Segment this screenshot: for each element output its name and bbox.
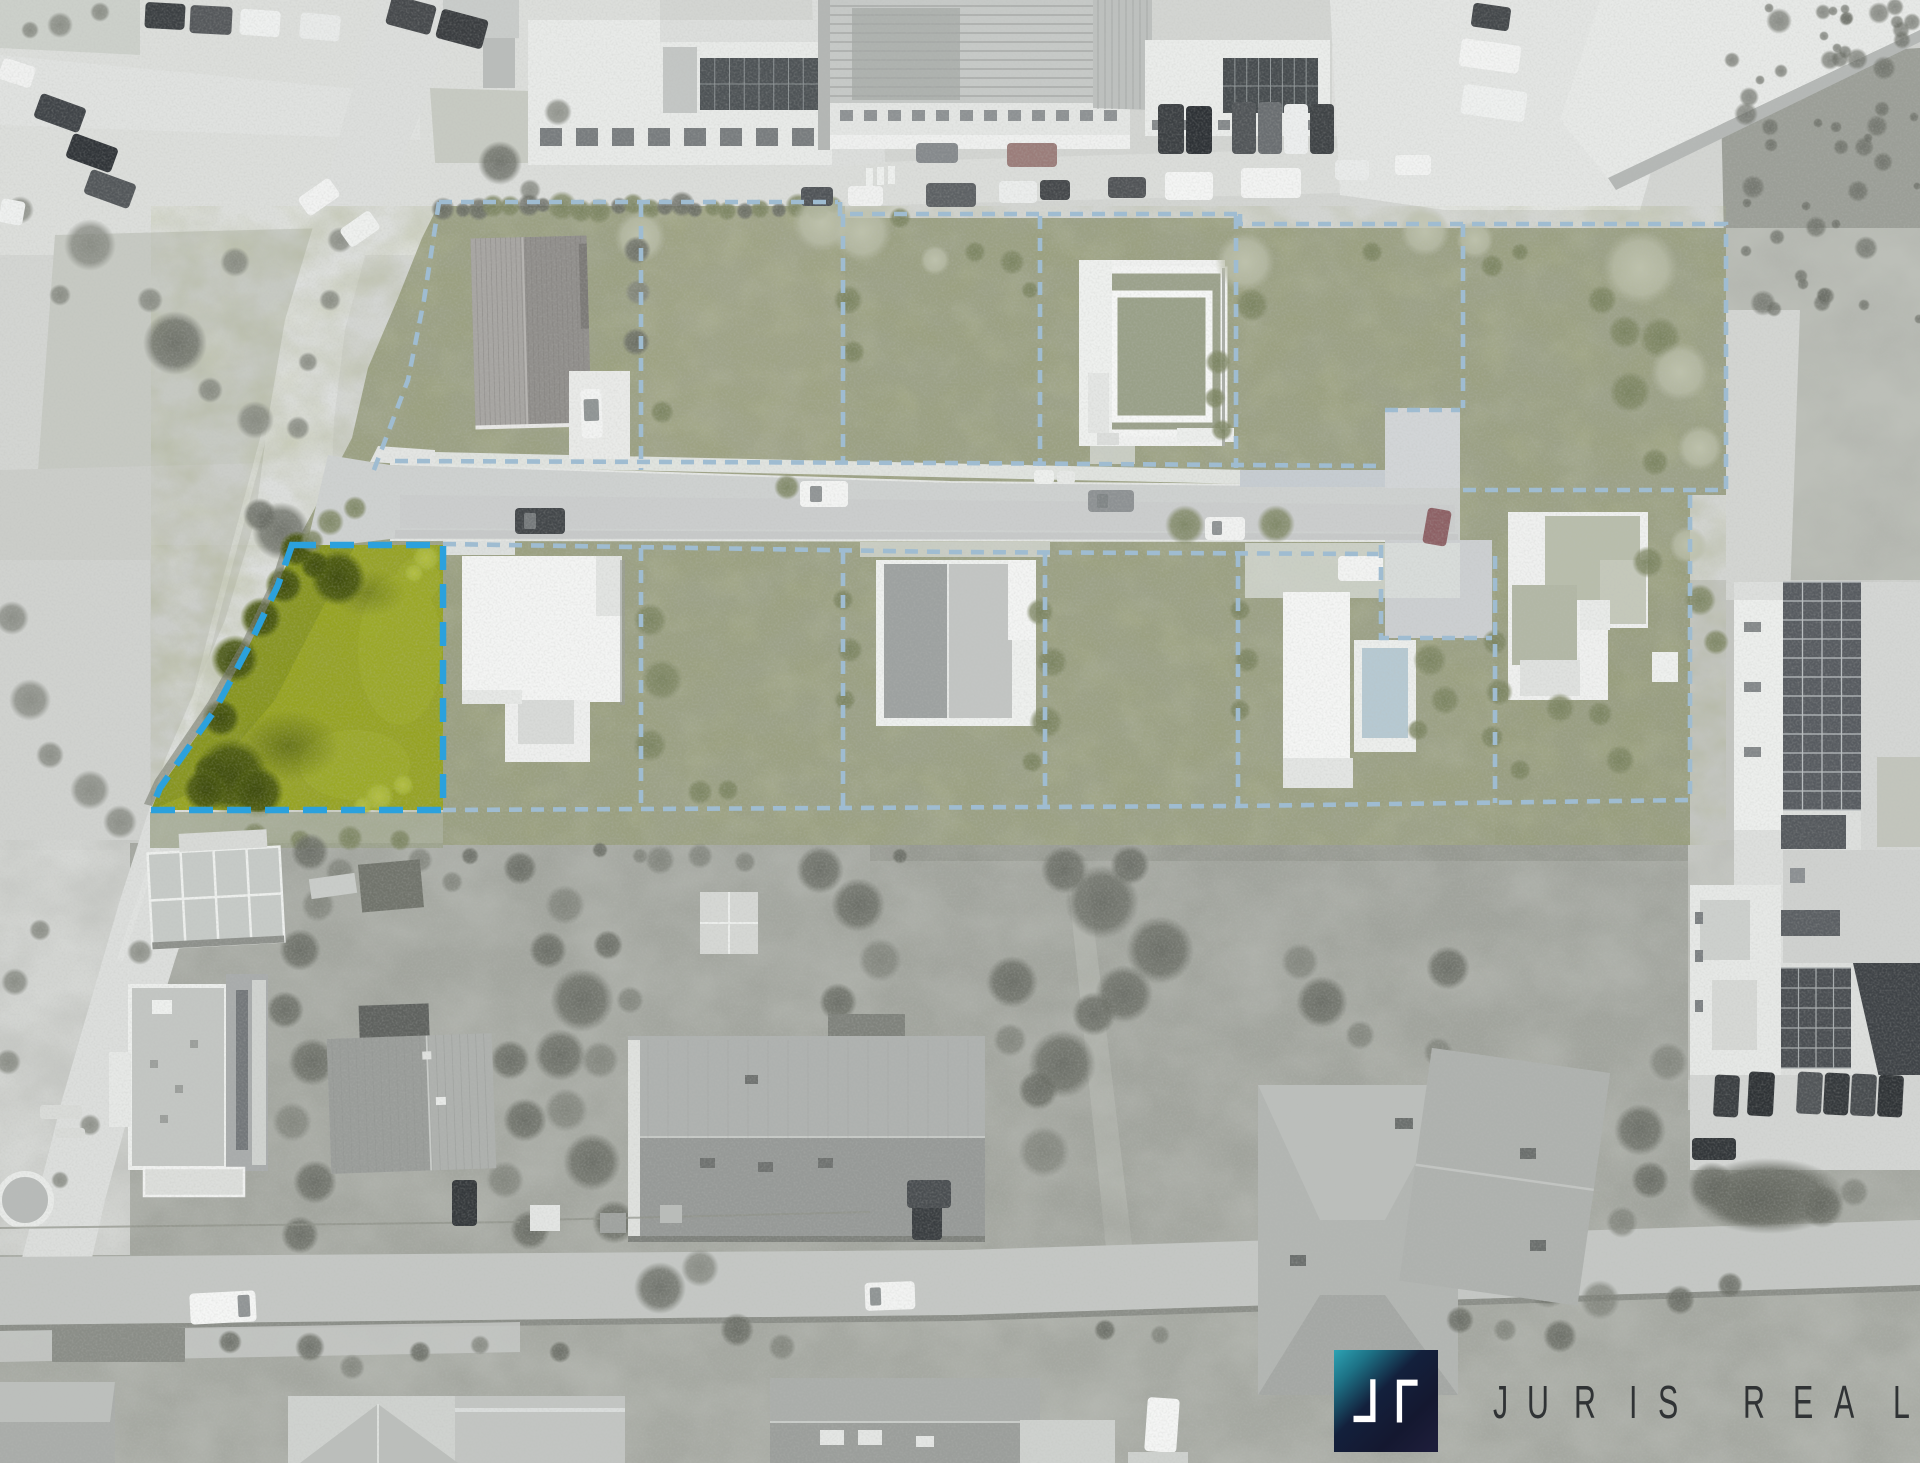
svg-text:E: E — [1793, 1378, 1813, 1429]
svg-text:R: R — [1574, 1378, 1596, 1429]
svg-text:R: R — [1743, 1378, 1765, 1429]
svg-text:U: U — [1527, 1378, 1549, 1429]
svg-text:S: S — [1658, 1378, 1678, 1429]
svg-text:A: A — [1834, 1378, 1854, 1429]
svg-text:I: I — [1629, 1378, 1637, 1429]
svg-text:J: J — [1493, 1378, 1508, 1429]
svg-text:L: L — [1893, 1378, 1910, 1429]
